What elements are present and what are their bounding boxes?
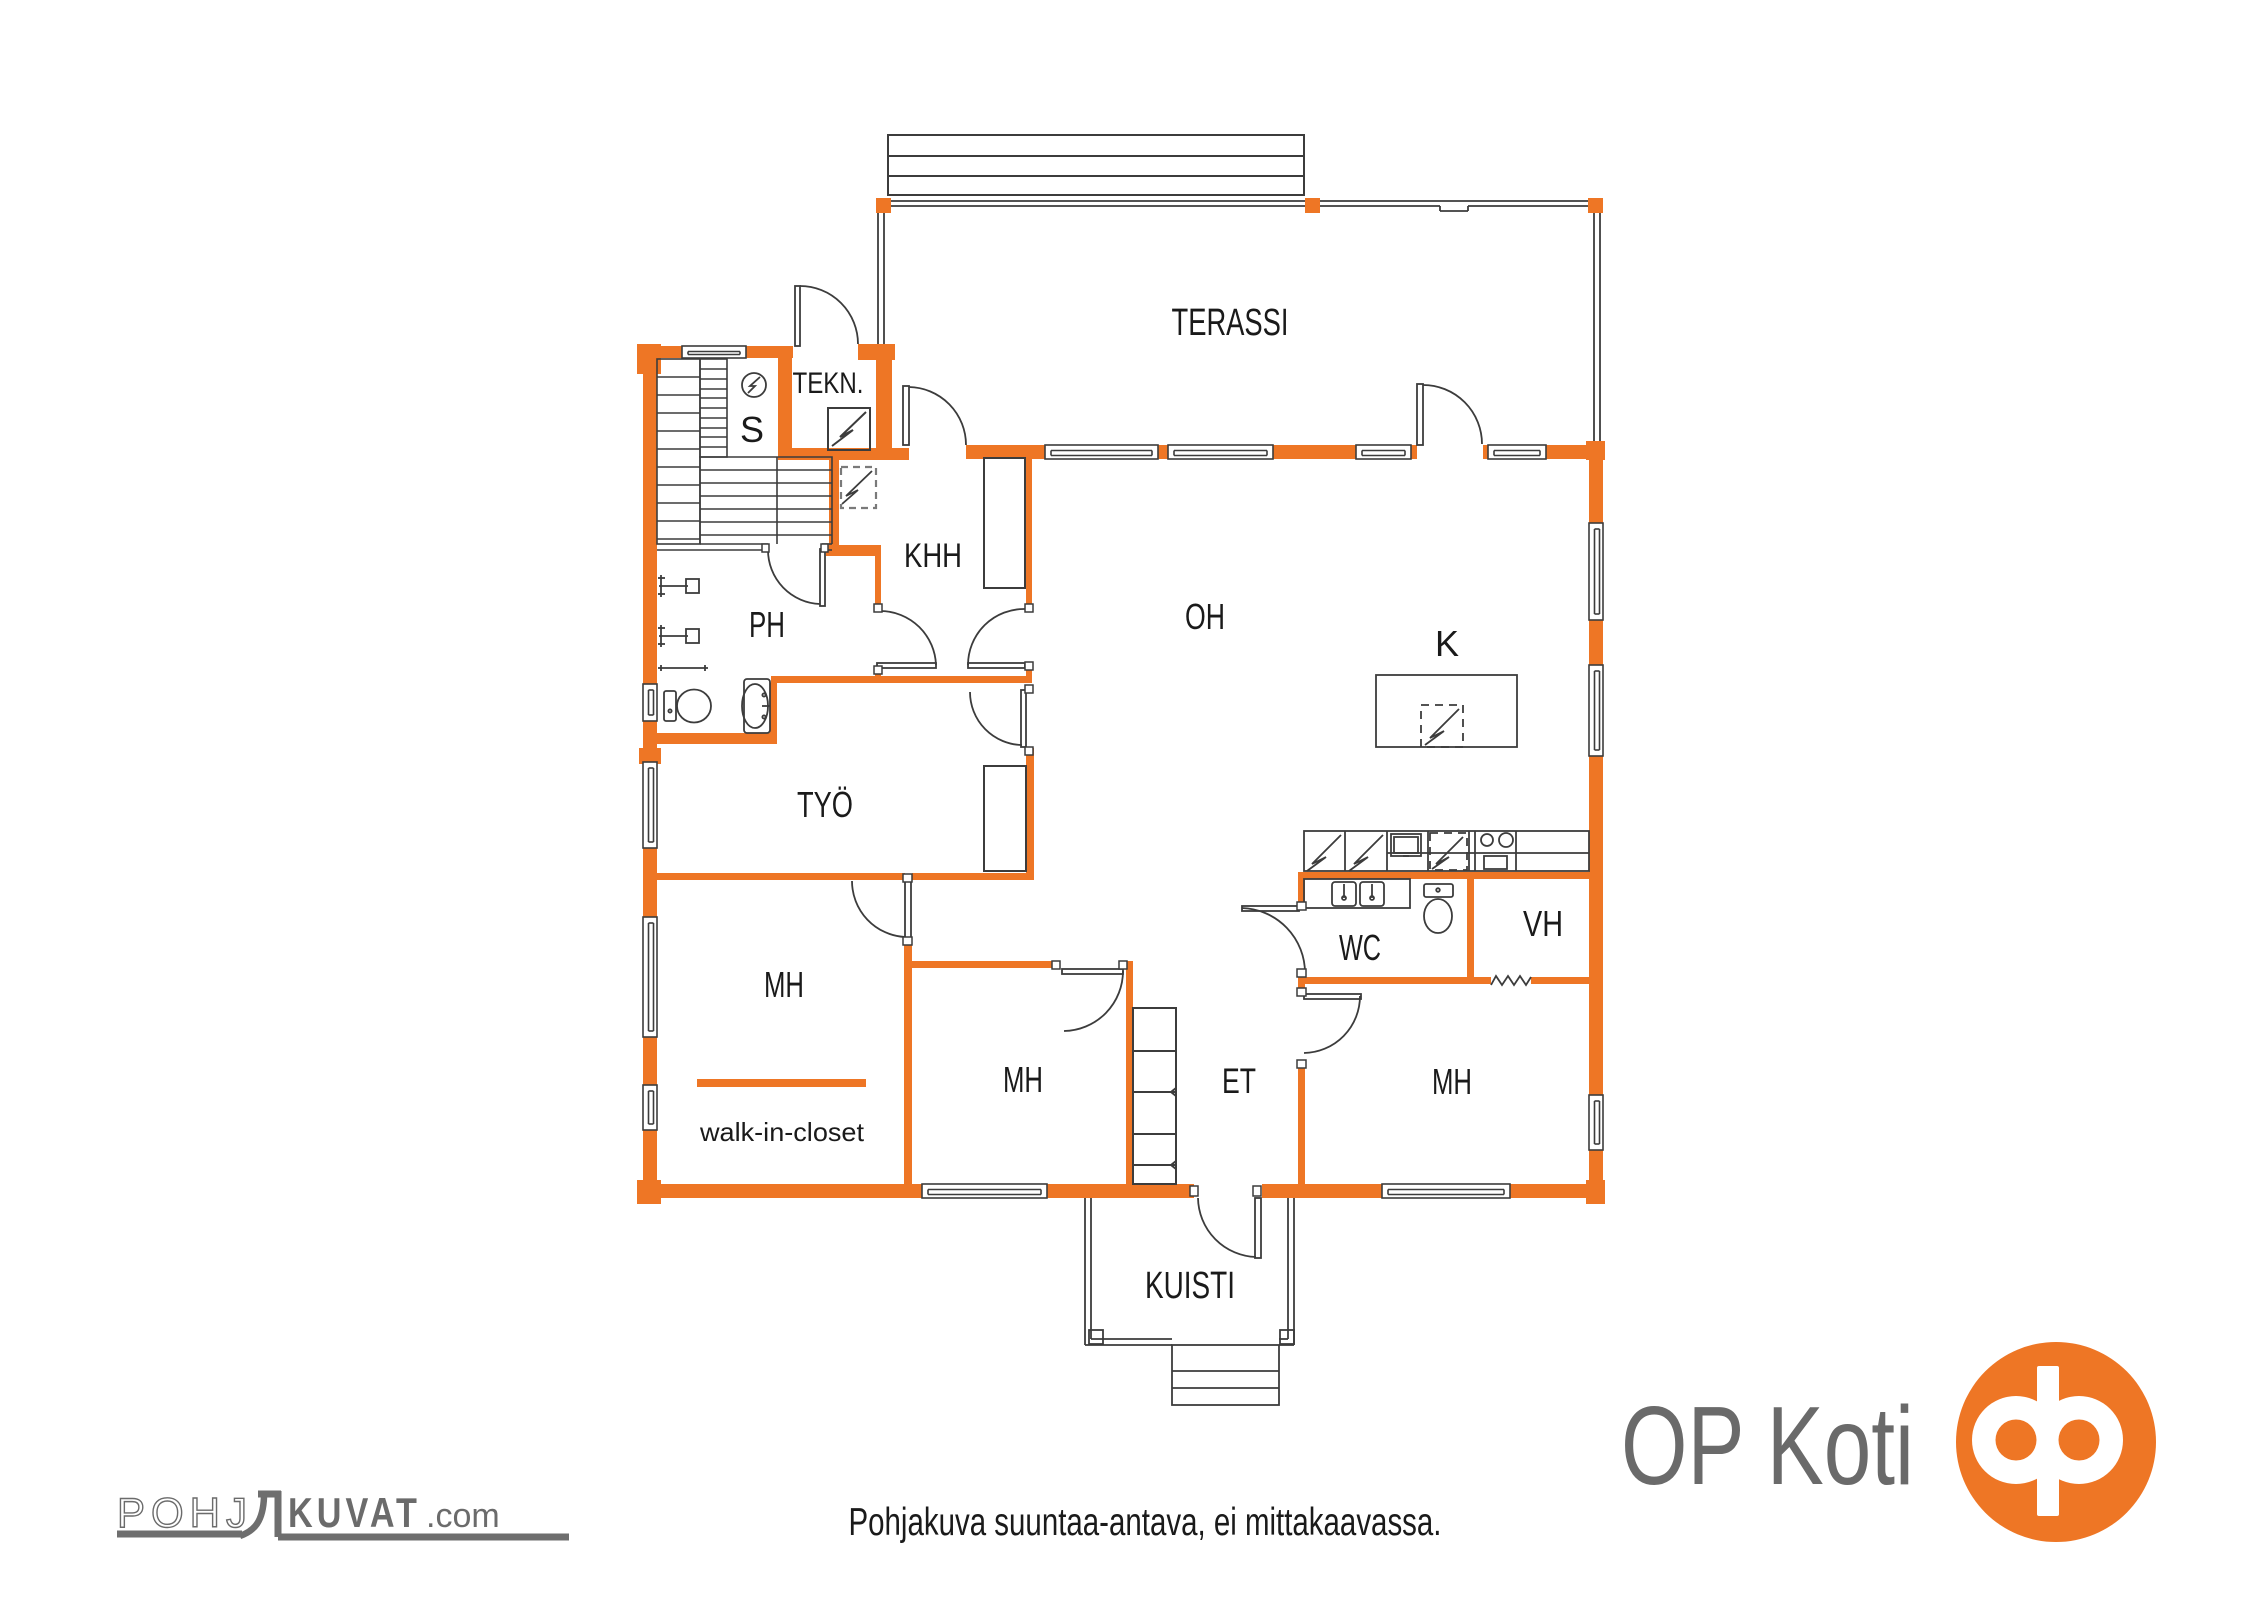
svg-text:MH: MH xyxy=(1432,1061,1472,1102)
svg-text:TEKN.: TEKN. xyxy=(793,367,864,400)
svg-text:S: S xyxy=(740,409,764,450)
svg-text:OP Koti: OP Koti xyxy=(1621,1384,1914,1508)
svg-text:KHH: KHH xyxy=(904,537,962,575)
svg-text:KUISTI: KUISTI xyxy=(1145,1265,1235,1307)
svg-text:K: K xyxy=(1435,623,1459,664)
svg-text:OH: OH xyxy=(1185,596,1225,637)
svg-text:PH: PH xyxy=(749,604,785,645)
svg-text:WC: WC xyxy=(1339,927,1381,968)
svg-text:ET: ET xyxy=(1222,1062,1256,1101)
svg-text:VH: VH xyxy=(1523,903,1563,944)
svg-text:MH: MH xyxy=(1003,1059,1043,1100)
svg-text:POHJ: POHJ xyxy=(117,1489,253,1536)
svg-text:walk-in-closet: walk-in-closet xyxy=(699,1117,865,1147)
svg-text:.com: .com xyxy=(426,1497,500,1535)
svg-text:TERASSI: TERASSI xyxy=(1172,302,1289,344)
svg-text:TYÖ: TYÖ xyxy=(797,784,853,825)
svg-text:KUVAT: KUVAT xyxy=(288,1489,421,1536)
svg-text:Pohjakuva suuntaa-antava, ei m: Pohjakuva suuntaa-antava, ei mittakaavas… xyxy=(849,1501,1442,1544)
svg-text:MH: MH xyxy=(764,964,804,1005)
